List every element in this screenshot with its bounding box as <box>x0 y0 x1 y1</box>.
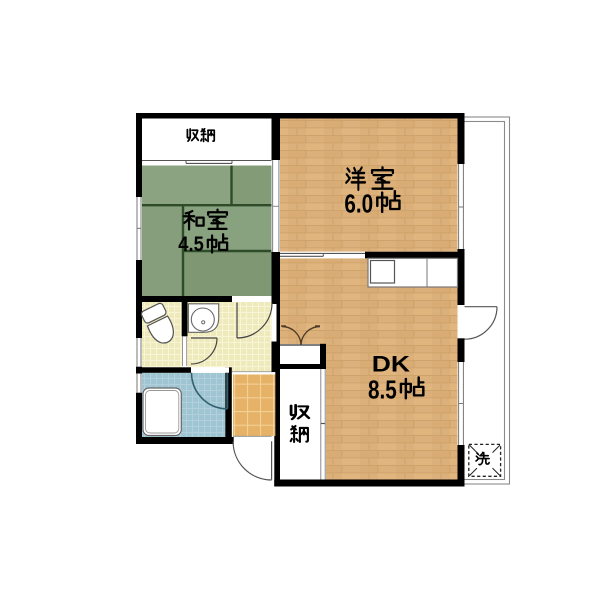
svg-text:4.5: 4.5 <box>178 233 204 256</box>
svg-text:8.5: 8.5 <box>368 376 397 404</box>
svg-text:6.0: 6.0 <box>344 188 373 218</box>
svg-text:DK: DK <box>372 352 411 377</box>
